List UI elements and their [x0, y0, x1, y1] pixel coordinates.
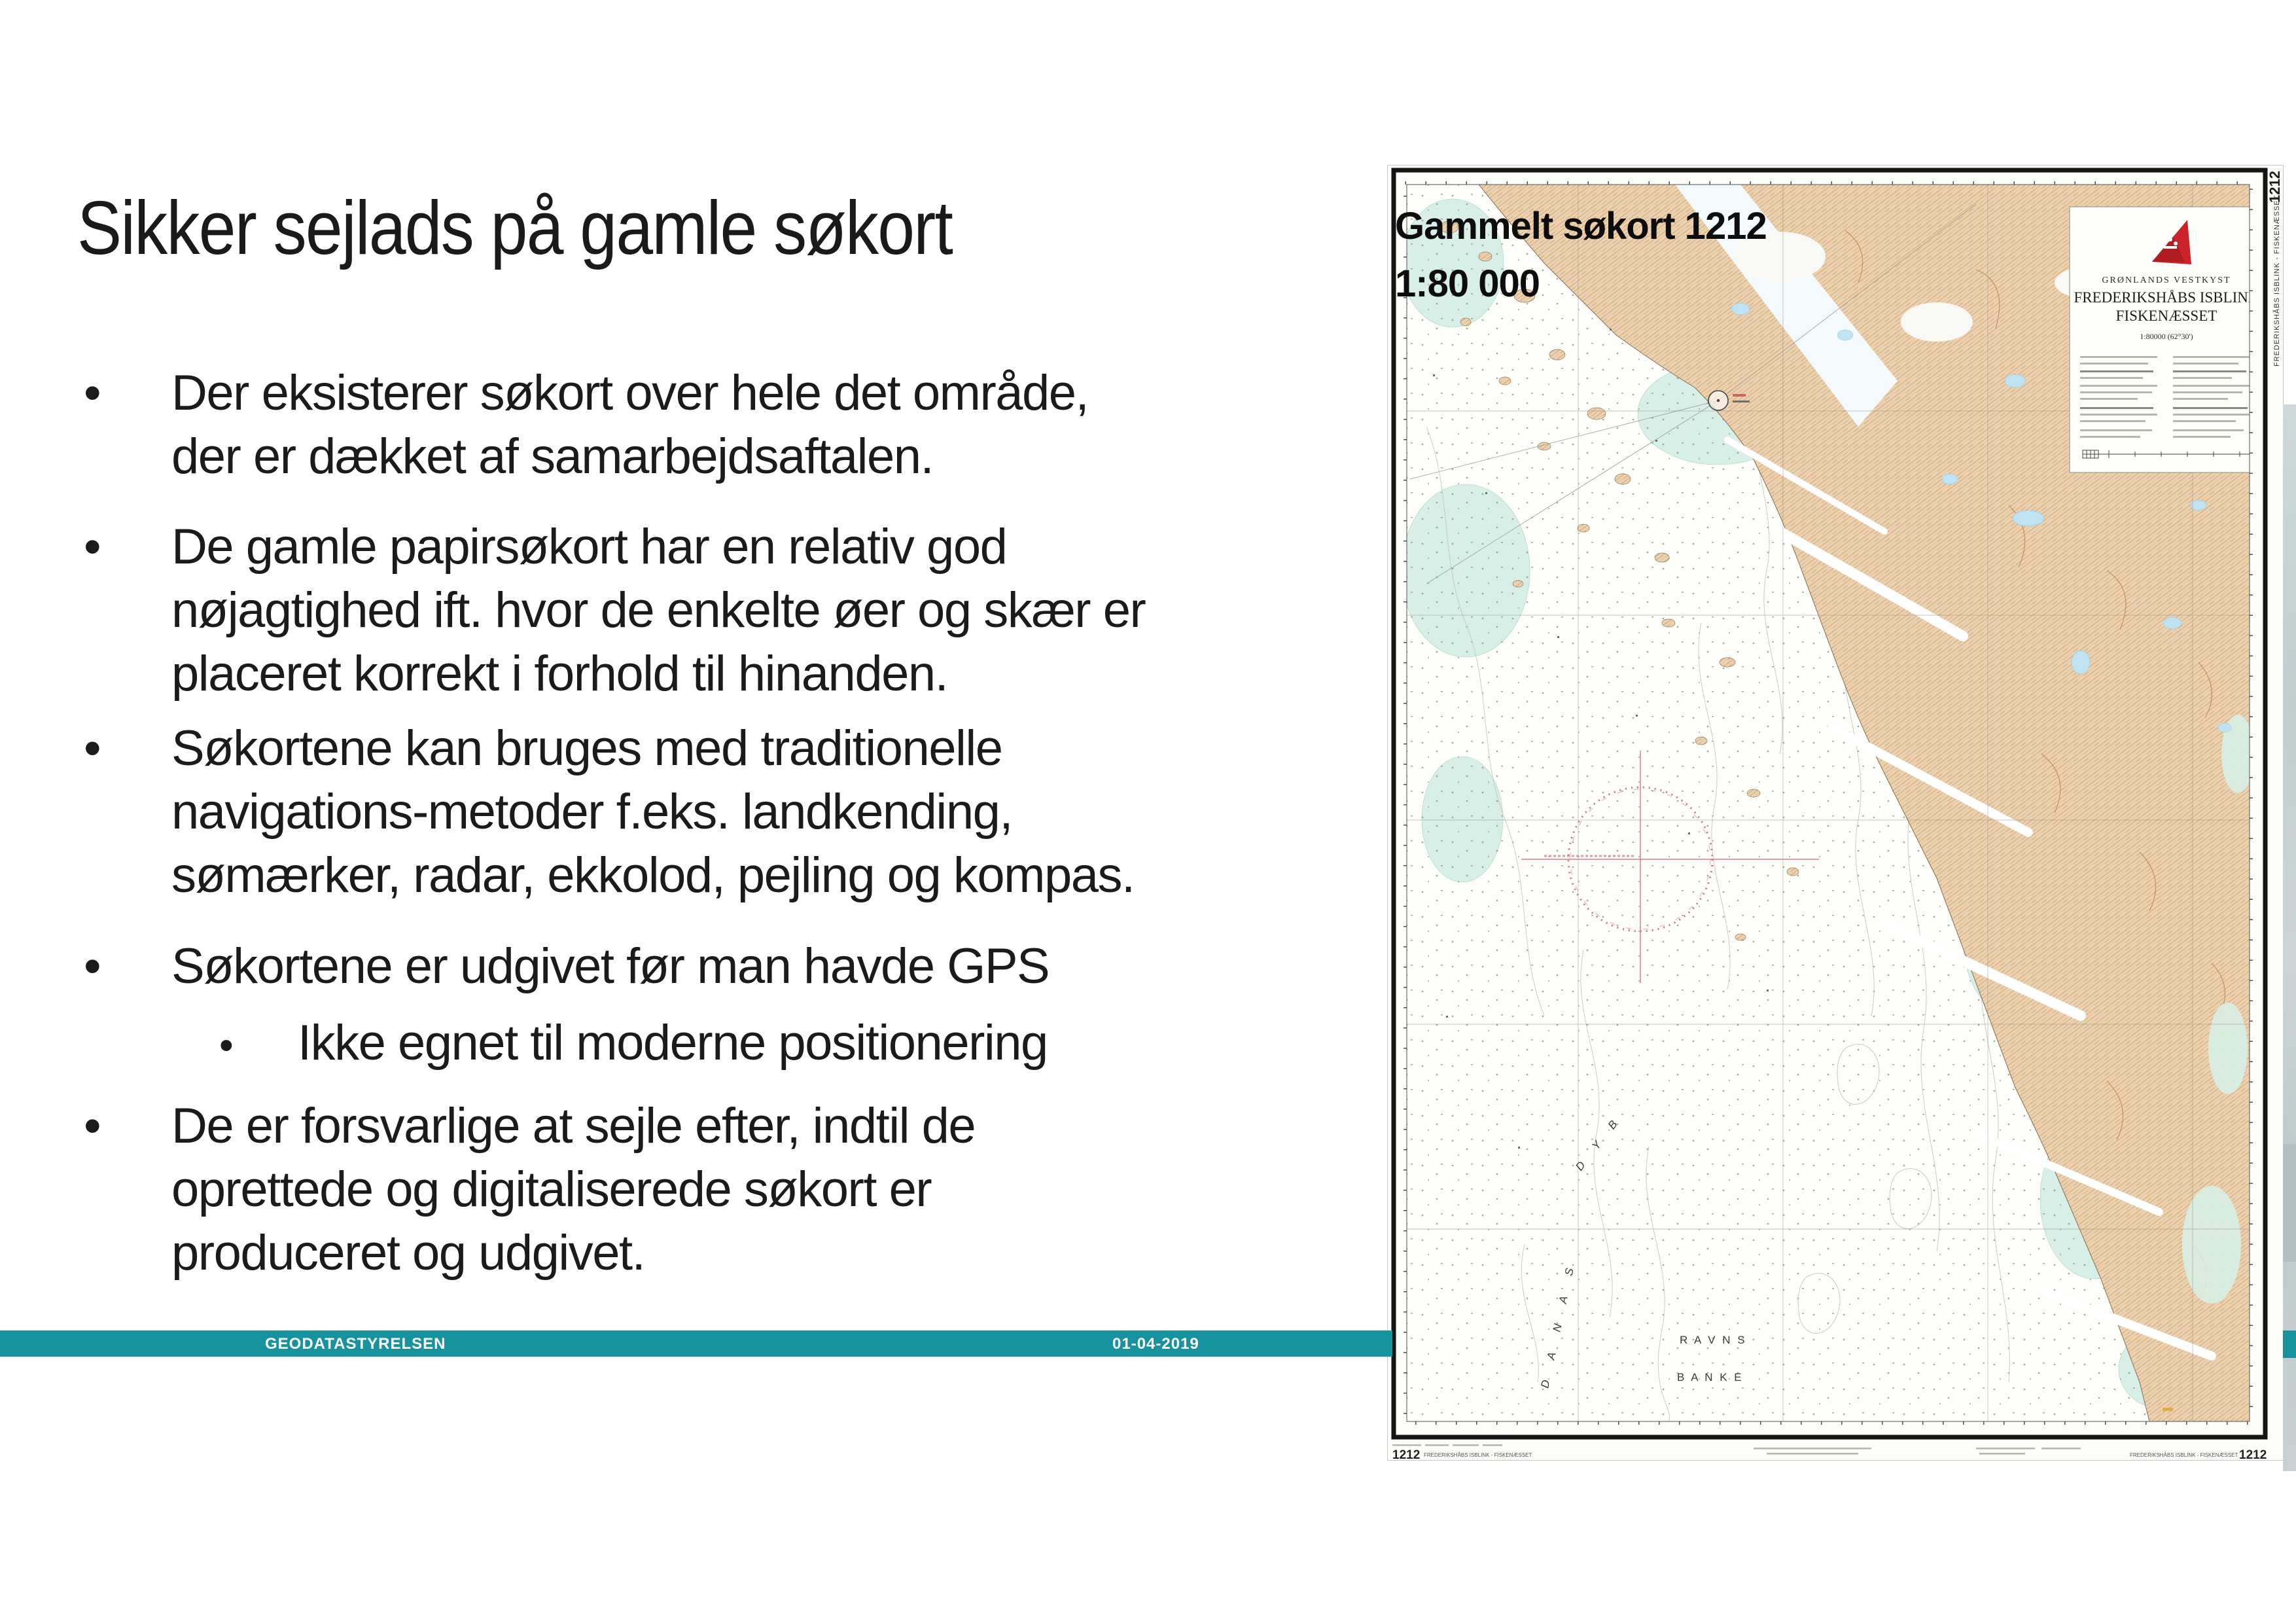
bullet-line: De gamle papirsøkort har en relativ god: [0, 515, 1348, 579]
bullet-line: produceret og udgivet.: [0, 1221, 1348, 1285]
bullet-line: sømærker, radar, ekkolod, pejling og kom…: [0, 844, 1348, 907]
bullet-item-4-sub: Ikke egnet til moderne positionering: [0, 1011, 1348, 1075]
label-ravns: R A V N S: [1680, 1334, 1747, 1346]
bullet-line: navigations-metoder f.eks. landkending,: [0, 780, 1348, 844]
footer-date: 01-04-2019: [1112, 1330, 1199, 1357]
imprint-number-right: 1212: [2239, 1448, 2267, 1461]
bullet-line: Ikke egnet til moderne positionering: [0, 1011, 1348, 1075]
bullet-line: oprettede og digitaliserede søkort er: [0, 1158, 1348, 1221]
bullet-item-2: De gamle papirsøkort har en relativ god …: [0, 515, 1348, 705]
legend-region: GRØNLANDS VESTKYST: [2102, 276, 2231, 285]
footer-bar: GEODATASTYRELSEN 01-04-2019: [0, 1330, 1392, 1357]
legend-scale: 1:80000 (62°30'): [2140, 332, 2193, 341]
orange-note: [2163, 1408, 2173, 1411]
bullet-line: Der eksisterer søkort over hele det områ…: [0, 361, 1348, 425]
margin-side-label: FREDERIKSHÅBS ISBLINK - FISKENÆSSET: [2272, 195, 2281, 366]
label-banke: B A N K E: [1677, 1371, 1744, 1383]
page-title: Sikker sejlads på gamle søkort: [77, 190, 952, 266]
bullet-item-5: De er forsvarlige at sejle efter, indtil…: [0, 1094, 1348, 1285]
bullet-line: placeret korrekt i forhold til hinanden.: [0, 642, 1348, 705]
imprint-number-left: 1212: [1392, 1448, 1420, 1461]
bullet-line: der er dækket af samarbejdsaftalen.: [0, 425, 1348, 488]
bullet-item-1: Der eksisterer søkort over hele det områ…: [0, 361, 1348, 488]
nautical-chart-svg: D A N A S D Y B R A V N S B A N K E GRØN…: [1387, 165, 2284, 1461]
map-caption-line2: 1:80 000: [1395, 262, 1540, 306]
legend-title1: FREDERIKSHÅBS ISBLINK: [2074, 289, 2259, 306]
bullet-item-4: Søkortene er udgivet før man havde GPS: [0, 935, 1348, 998]
bullet-line: Søkortene kan bruges med traditionelle: [0, 717, 1348, 780]
slide: Sikker sejlads på gamle søkort Der eksis…: [0, 0, 2296, 1623]
legend-panel: GRØNLANDS VESTKYST FREDERIKSHÅBS ISBLINK…: [2070, 207, 2264, 473]
imprint-name-left: FREDERIKSHÅBS ISBLINK - FISKENÆSSET: [1424, 1452, 1532, 1458]
bullet-line: nøjagtighed ift. hvor de enkelte øer og …: [0, 579, 1348, 642]
nautical-chart-image: D A N A S D Y B R A V N S B A N K E GRØN…: [1387, 165, 2284, 1461]
chart-interior: D A N A S D Y B R A V N S B A N K E GRØN…: [1402, 185, 2264, 1421]
legend-title2: FISKENÆSSET: [2116, 308, 2217, 324]
cropped-edge-image: [2283, 404, 2296, 1471]
imprint-name-right: FREDERIKSHÅBS ISBLINK - FISKENÆSSET: [2130, 1452, 2238, 1458]
bullet-line: De er forsvarlige at sejle efter, indtil…: [0, 1094, 1348, 1158]
cropped-edge-band: [2283, 1144, 2296, 1262]
bullet-item-3: Søkortene kan bruges med traditionelle n…: [0, 717, 1348, 907]
footer-organization: GEODATASTYRELSEN: [265, 1330, 446, 1357]
cropped-edge-teal-band: [2283, 1330, 2296, 1358]
map-caption-line1: Gammelt søkort 1212: [1395, 204, 1767, 248]
bullet-line: Søkortene er udgivet før man havde GPS: [0, 935, 1348, 998]
